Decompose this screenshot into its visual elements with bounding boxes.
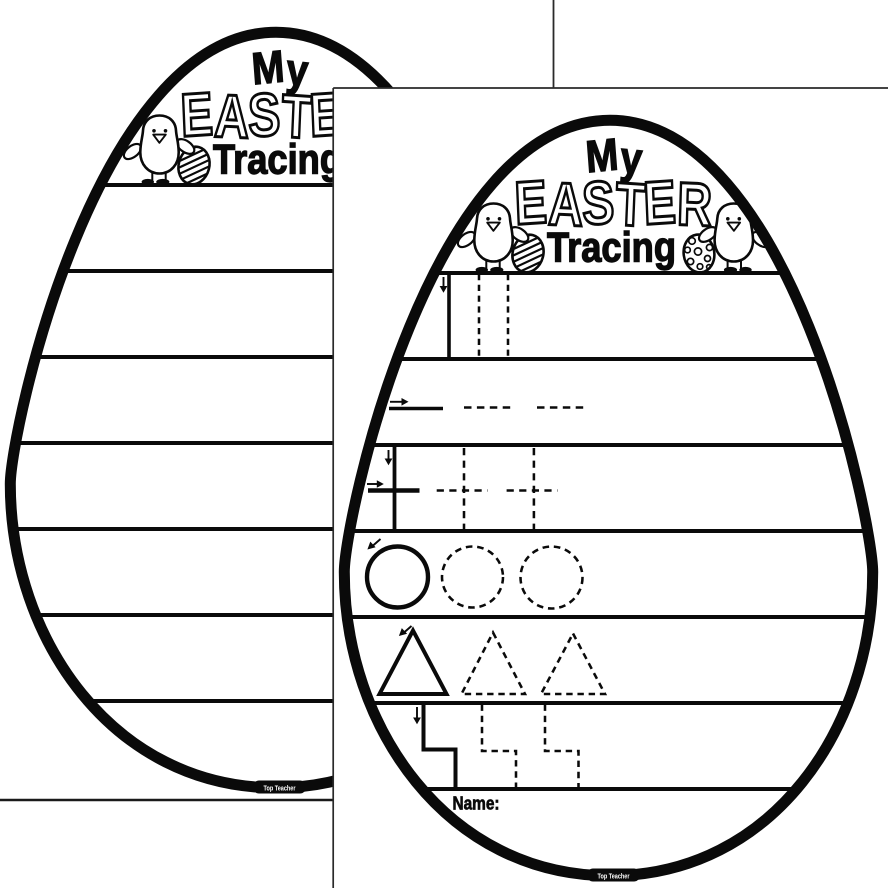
svg-text:Name:: Name: [453, 793, 500, 814]
